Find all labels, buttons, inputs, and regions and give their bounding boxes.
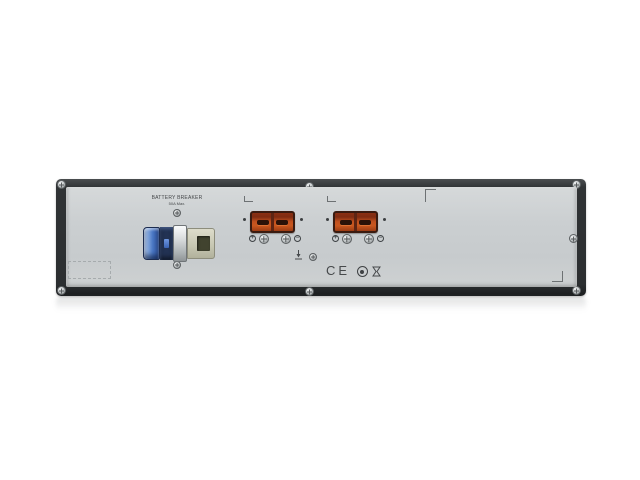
breaker-indicator xyxy=(164,239,169,248)
hourglass-certification-mark-icon xyxy=(372,266,381,277)
connector-center-groove xyxy=(271,213,274,231)
bezel-screw-bottom-left-icon xyxy=(57,286,66,295)
battery-circuit-breaker xyxy=(143,227,215,260)
ground-screw-icon xyxy=(309,253,317,261)
corner-mark-icon xyxy=(552,271,563,282)
breaker-screw-bottom-icon xyxy=(173,261,181,269)
anderson-battery-connector xyxy=(250,211,295,233)
battery-pack-rear-chassis: BATTERY BREAKER 50A Max. xyxy=(56,179,586,296)
minus-terminal-symbol: − xyxy=(294,235,301,242)
terminal-screw-icon xyxy=(259,234,269,244)
battery-connector-module-1: + − xyxy=(242,193,306,249)
product-photo: BATTERY BREAKER 50A Max. xyxy=(0,0,640,480)
minus-terminal-symbol: − xyxy=(377,235,384,242)
breaker-housing-dark xyxy=(160,227,173,260)
ce-mark: CE xyxy=(326,263,350,278)
bezel-screw-top-left-icon xyxy=(57,180,66,189)
panel-screw-right-icon xyxy=(569,234,578,243)
rivet-dot-icon xyxy=(300,218,303,221)
rivet-dot-icon xyxy=(326,218,329,221)
anderson-battery-connector xyxy=(333,211,378,233)
breaker-body xyxy=(187,228,215,259)
battery-connector-module-2: + − xyxy=(325,193,389,249)
bezel-screw-bottom-center-icon xyxy=(305,287,314,296)
breaker-body-slot xyxy=(197,236,210,251)
breaker-screw-top-icon xyxy=(173,209,181,217)
plus-terminal-symbol: + xyxy=(332,235,339,242)
bezel-screw-bottom-right-icon xyxy=(572,286,581,295)
rivet-dot-icon xyxy=(383,218,386,221)
terminal-screw-icon xyxy=(342,234,352,244)
round-certification-mark-icon xyxy=(357,266,368,277)
label-placeholder-outline xyxy=(68,261,111,279)
table-reflection xyxy=(56,297,586,311)
earth-ground-icon xyxy=(294,250,303,260)
terminal-screw-icon xyxy=(281,234,291,244)
corner-mark-icon xyxy=(425,189,436,202)
connector-slot-icon xyxy=(359,220,371,225)
connector-slot-icon xyxy=(276,220,288,225)
battery-breaker-rating-label: 50A Max. xyxy=(137,201,217,206)
connector-slot-icon xyxy=(340,220,352,225)
breaker-blue-rocker xyxy=(143,227,160,260)
breaker-metal-bracket xyxy=(173,225,187,262)
terminal-screw-icon xyxy=(364,234,374,244)
corner-mark-icon xyxy=(327,196,336,202)
rivet-dot-icon xyxy=(243,218,246,221)
rear-panel-face: BATTERY BREAKER 50A Max. xyxy=(66,187,577,287)
connector-slot-icon xyxy=(257,220,269,225)
connector-center-groove xyxy=(354,213,357,231)
corner-mark-icon xyxy=(244,196,253,202)
plus-terminal-symbol: + xyxy=(249,235,256,242)
